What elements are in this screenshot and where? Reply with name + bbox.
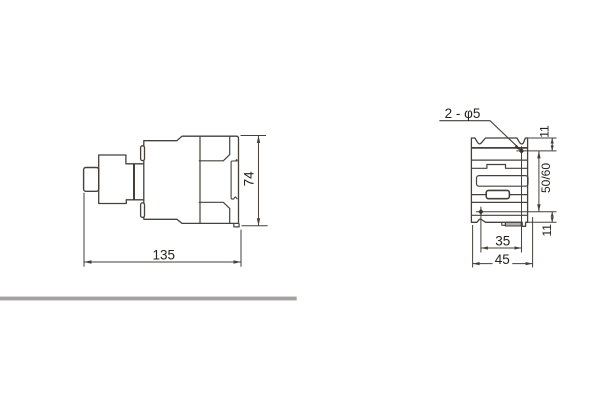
svg-text:45: 45: [495, 252, 510, 267]
svg-text:50/60: 50/60: [539, 163, 553, 193]
svg-text:11: 11: [540, 224, 554, 237]
svg-text:11: 11: [537, 125, 551, 138]
svg-text:35: 35: [495, 234, 510, 249]
svg-text:135: 135: [153, 247, 176, 262]
svg-text:74: 74: [242, 171, 257, 187]
svg-text:2 - φ5: 2 - φ5: [445, 106, 481, 121]
